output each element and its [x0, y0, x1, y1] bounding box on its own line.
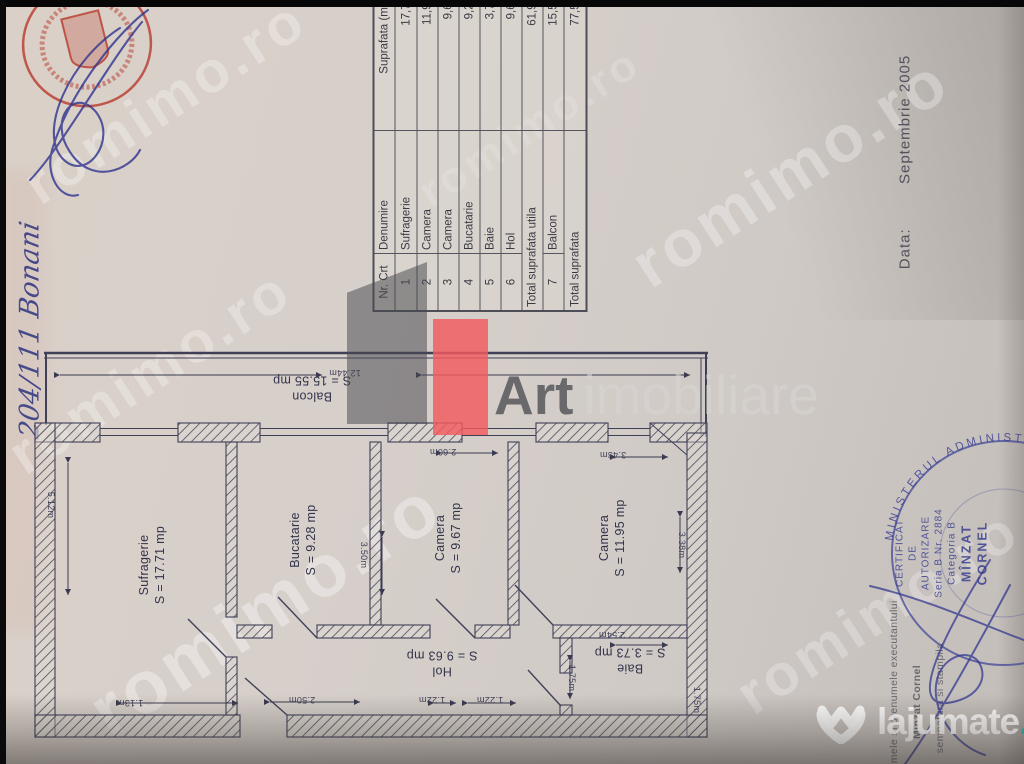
room-name: Camera	[432, 502, 448, 573]
date-value: Septembrie 2005	[897, 55, 914, 184]
art-imobiliare-flag-shape	[347, 262, 427, 424]
cell-nr: 6	[501, 254, 522, 312]
dim-baie-height: 1.75m	[567, 665, 577, 692]
room-label-hol: Hol S = 9.63 mp	[406, 647, 477, 680]
table-row: 4Bucatarie9,28	[458, 0, 479, 311]
cell-area: 15,55	[543, 0, 564, 131]
table-total-row: Total suprafata77,52	[564, 0, 586, 311]
cell-area: 3,73	[479, 0, 500, 131]
signature-top-left	[0, 0, 220, 240]
cell-nr: 3	[437, 254, 458, 312]
dim-baie-width: 2.54m	[599, 630, 626, 640]
areas-table-wrapper: Nr. Crt Denumire Suprafata (mp) 1Sufrage…	[372, 16, 587, 312]
areas-table: Nr. Crt Denumire Suprafata (mp) 1Sufrage…	[372, 0, 587, 312]
art-imobiliare-logo: Artimobiliare	[494, 368, 819, 423]
room-name: Camera	[596, 499, 612, 576]
scanned-floor-plan-document: romimo.ro romimo.ro romimo.ro romimo.ro …	[0, 0, 1024, 764]
date-label: Data:	[897, 228, 914, 269]
cell-area: 61,97	[522, 0, 543, 131]
room-area: S = 9.63 mp	[406, 647, 477, 663]
cell-name: Baie	[479, 131, 500, 254]
table-row: 3Camera9,67	[437, 0, 458, 311]
room-label-sufragerie: Sufragerie S = 17.71 mp	[136, 526, 169, 604]
room-name: Balcon	[273, 388, 351, 404]
dim-camera2-height: 3.38m	[677, 532, 687, 559]
cell-area: 9,67	[437, 0, 458, 131]
cell-nr: 7	[543, 254, 564, 312]
cell-area: 17,71	[395, 0, 416, 131]
cell-name: Camera	[437, 131, 458, 254]
room-area: S = 9.67 mp	[448, 502, 464, 573]
room-label-baie: Baie S = 3.73 mp	[594, 644, 665, 677]
room-label-camera-2: Camera S = 11.95 mp	[596, 499, 629, 576]
col-header-denumire: Denumire	[373, 131, 395, 254]
cell-area: 11,95	[416, 0, 437, 131]
room-area: S = 9.28 mp	[303, 504, 319, 575]
dim-camera1-width: 2.60m	[430, 447, 457, 457]
dim-camera2-width: 3.43m	[600, 450, 627, 460]
cell-total-label: Total suprafata	[564, 131, 586, 312]
room-name: Bucatarie	[287, 504, 303, 575]
room-name: Sufragerie	[136, 526, 152, 604]
table-row: 5Baie3,73	[479, 0, 500, 311]
cell-nr: 5	[479, 254, 500, 312]
dim-bucatarie-height: 3.50m	[359, 542, 369, 569]
table-row: 7Balcon15,55	[543, 0, 564, 311]
cell-name: Bucatarie	[458, 131, 479, 254]
room-area: S = 11.95 mp	[612, 499, 628, 576]
paper-shading-bottom	[0, 694, 1024, 764]
room-area: S = 17.71 mp	[152, 526, 168, 604]
cell-name: Balcon	[543, 131, 564, 254]
col-header-suprafata: Suprafata (mp)	[373, 0, 395, 131]
cell-area: 9,63	[501, 0, 522, 131]
cell-area: 9,28	[458, 0, 479, 131]
cell-name: Camera	[416, 131, 437, 254]
table-row: 6Hol9,63	[501, 0, 522, 311]
art-imobiliare-word2: imobiliare	[583, 364, 818, 426]
cell-name: Hol	[501, 131, 522, 254]
scan-border-left	[0, 0, 6, 764]
cell-nr: 4	[458, 254, 479, 312]
cell-area: 77,52	[564, 0, 586, 131]
room-label-bucatarie: Bucatarie S = 9.28 mp	[287, 504, 320, 575]
table-header-row: Nr. Crt Denumire Suprafata (mp)	[373, 0, 395, 311]
cell-total-label: Total suprafata utila	[522, 131, 543, 312]
room-name: Baie	[594, 660, 665, 676]
table-total-utila-row: Total suprafata utila61,97	[522, 0, 543, 311]
art-imobiliare-word1: Art	[494, 364, 573, 426]
table-row: 1Sufragerie17,71	[395, 0, 416, 311]
room-label-camera-1: Camera S = 9.67 mp	[432, 502, 465, 573]
room-name: Hol	[406, 663, 477, 679]
dim-sufragerie-height: 5.12m	[46, 492, 56, 519]
document-date: Data: Septembrie 2005	[897, 55, 914, 269]
cell-name: Sufragerie	[395, 131, 416, 254]
scan-border-top	[0, 0, 1024, 7]
room-area: S = 3.73 mp	[594, 644, 665, 660]
art-imobiliare-red-block	[433, 319, 488, 435]
